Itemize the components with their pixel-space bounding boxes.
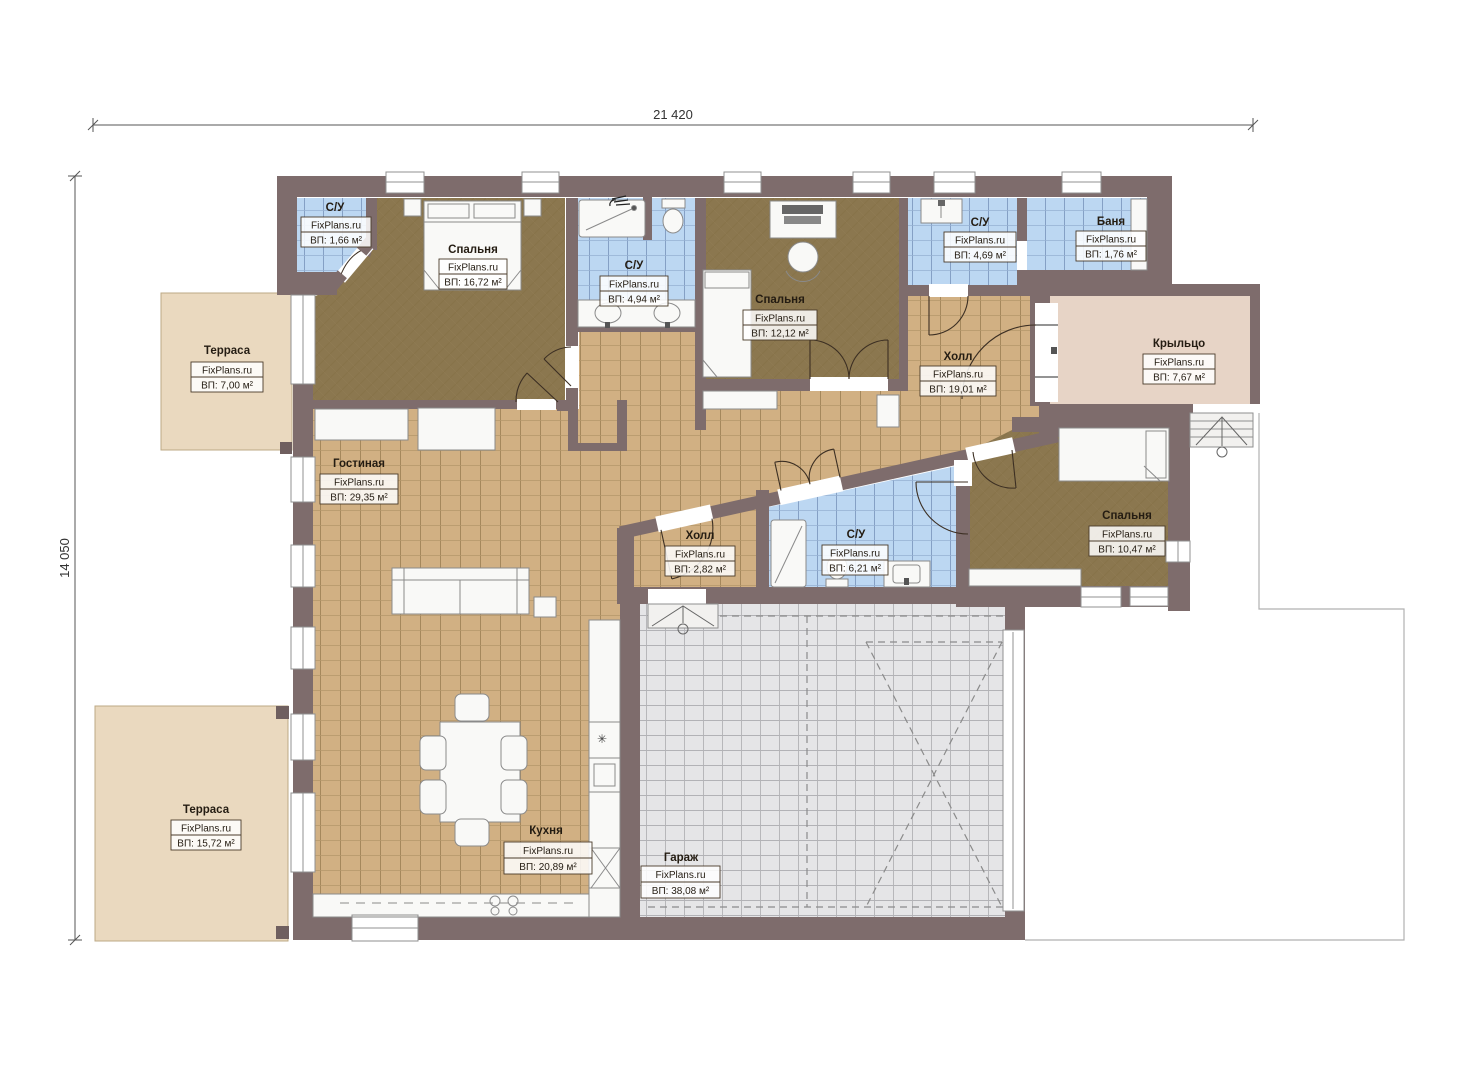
svg-text:Холл: Холл	[686, 530, 715, 542]
svg-text:FixPlans.ru: FixPlans.ru	[311, 221, 361, 232]
svg-text:Спальня: Спальня	[448, 244, 498, 256]
svg-text:✳: ✳	[597, 732, 607, 746]
svg-text:ВП: 16,72 м²: ВП: 16,72 м²	[444, 278, 502, 289]
svg-text:С/У: С/У	[326, 202, 346, 214]
svg-text:FixPlans.ru: FixPlans.ru	[523, 846, 573, 857]
svg-text:14 050: 14 050	[57, 538, 72, 578]
svg-text:ВП: 4,94 м²: ВП: 4,94 м²	[608, 295, 661, 306]
svg-text:ВП: 15,72 м²: ВП: 15,72 м²	[177, 839, 235, 850]
svg-text:FixPlans.ru: FixPlans.ru	[334, 478, 384, 489]
svg-text:FixPlans.ru: FixPlans.ru	[181, 824, 231, 835]
svg-text:С/У: С/У	[847, 529, 867, 541]
svg-text:ВП: 4,69 м²: ВП: 4,69 м²	[954, 251, 1007, 262]
svg-text:ВП: 7,00 м²: ВП: 7,00 м²	[201, 381, 254, 392]
svg-text:Гостиная: Гостиная	[333, 458, 385, 470]
svg-text:ВП: 38,08 м²: ВП: 38,08 м²	[652, 886, 710, 897]
svg-text:FixPlans.ru: FixPlans.ru	[609, 280, 659, 291]
svg-text:ВП: 10,47 м²: ВП: 10,47 м²	[1098, 545, 1156, 556]
svg-text:FixPlans.ru: FixPlans.ru	[830, 549, 880, 560]
svg-text:Спальня: Спальня	[755, 294, 805, 306]
svg-text:FixPlans.ru: FixPlans.ru	[655, 870, 705, 881]
svg-text:С/У: С/У	[625, 260, 645, 272]
svg-text:ВП: 12,12 м²: ВП: 12,12 м²	[751, 329, 809, 340]
svg-text:FixPlans.ru: FixPlans.ru	[202, 366, 252, 377]
svg-text:ВП: 1,66 м²: ВП: 1,66 м²	[310, 236, 363, 247]
svg-text:FixPlans.ru: FixPlans.ru	[1102, 530, 1152, 541]
svg-text:Крыльцо: Крыльцо	[1153, 338, 1205, 350]
svg-text:Терраса: Терраса	[183, 804, 230, 816]
svg-text:FixPlans.ru: FixPlans.ru	[1086, 235, 1136, 246]
svg-text:FixPlans.ru: FixPlans.ru	[755, 314, 805, 325]
svg-text:С/У: С/У	[971, 217, 991, 229]
svg-text:FixPlans.ru: FixPlans.ru	[448, 263, 498, 274]
svg-text:Терраса: Терраса	[204, 345, 251, 357]
svg-text:ВП: 29,35 м²: ВП: 29,35 м²	[330, 493, 388, 504]
svg-text:ВП: 2,82 м²: ВП: 2,82 м²	[674, 565, 727, 576]
svg-text:FixPlans.ru: FixPlans.ru	[675, 550, 725, 561]
svg-text:FixPlans.ru: FixPlans.ru	[933, 370, 983, 381]
svg-text:ВП: 19,01 м²: ВП: 19,01 м²	[929, 385, 987, 396]
svg-text:21 420: 21 420	[653, 107, 693, 122]
svg-text:FixPlans.ru: FixPlans.ru	[1154, 358, 1204, 369]
svg-text:ВП: 7,67 м²: ВП: 7,67 м²	[1153, 373, 1206, 384]
svg-text:Холл: Холл	[944, 351, 973, 363]
svg-text:FixPlans.ru: FixPlans.ru	[955, 236, 1005, 247]
svg-text:ВП: 20,89 м²: ВП: 20,89 м²	[519, 862, 577, 873]
svg-text:Кухня: Кухня	[529, 825, 563, 837]
svg-text:Спальня: Спальня	[1102, 510, 1152, 522]
svg-text:Баня: Баня	[1097, 216, 1125, 228]
svg-text:ВП: 1,76 м²: ВП: 1,76 м²	[1085, 250, 1138, 261]
svg-text:Гараж: Гараж	[664, 852, 699, 864]
svg-text:ВП: 6,21 м²: ВП: 6,21 м²	[829, 564, 882, 575]
